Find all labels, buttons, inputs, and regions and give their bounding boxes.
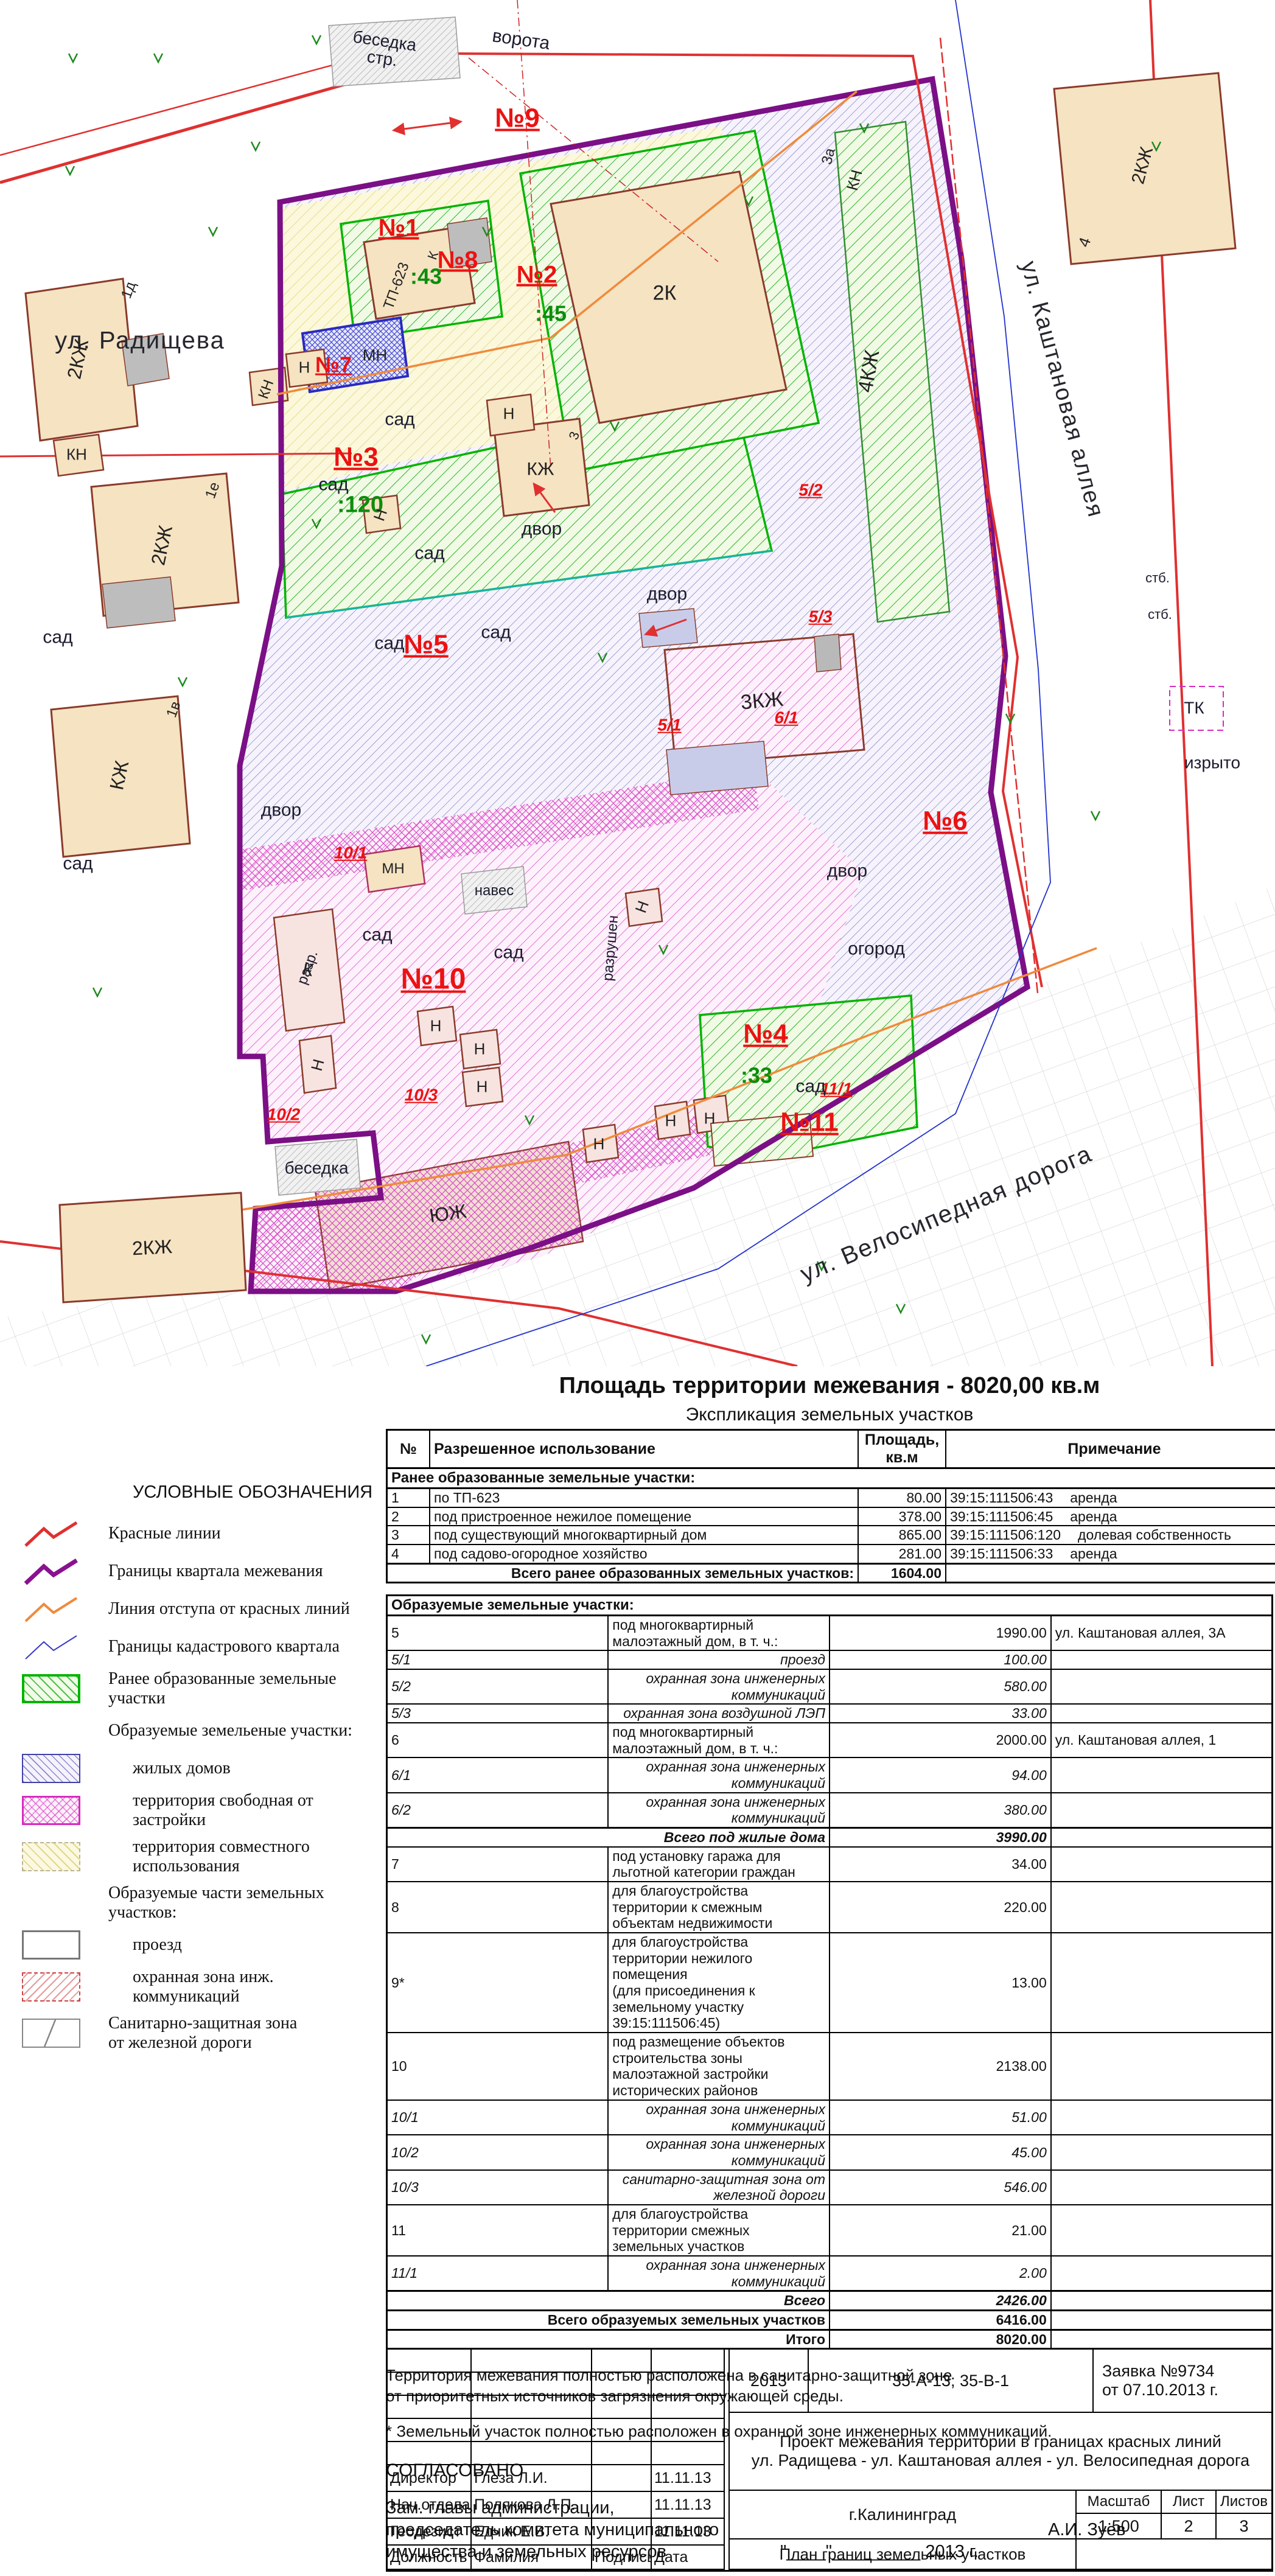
signer-signature [592,2519,652,2546]
map-label: №2 [517,263,557,288]
map-label: Н [371,507,389,523]
section-label: Образуемые земельные участки: [387,1596,1273,1616]
table-row: Всего под жилые дома3990.00 [387,1828,1273,1847]
stamp-col-header: Дата [652,2546,725,2570]
map-label: огород [848,940,905,959]
row-number: 11/1 [387,2256,609,2291]
map-label: ворота [491,27,551,54]
row-area: 80.00 [858,1488,946,1507]
legend-item: Санитарно-защитная зона от железной доро… [22,2014,382,2053]
row-use: охранная зона воздушной ЛЭП [608,1704,830,1723]
total-label: Итого [387,2330,830,2349]
legend-item: территория совместного использования [22,1837,382,1876]
stamp-col-header: Фамилия [472,2546,592,2570]
map-label: изрыто [1184,755,1240,772]
legend-swatch-box-white [22,1930,80,1960]
map-label: МН [363,347,387,364]
row-number: 10 [387,2033,609,2100]
map-label: КН [844,168,865,192]
tb-scale-label: Масштаб [1075,2491,1161,2514]
table-row: 10/2охранная зона инженерных коммуникаци… [387,2135,1273,2169]
table-row: 3под существующий многоквартирный дом865… [387,1526,1275,1545]
stamp-grid: ДиректорГлеза Л.И.11.11.13Нач.отделаПоля… [388,2350,728,2570]
row-note [1051,1669,1273,1704]
row-number: 10/2 [387,2135,609,2169]
map-label: сад [318,476,348,495]
legend-swatch-line [22,1557,80,1586]
row-number: 2 [387,1507,430,1526]
legend-item: Линия отступа от красных линий [22,1594,382,1624]
map-label: двор [647,585,687,604]
table-row: Всего образуемых земельных участков6416.… [387,2310,1273,2330]
legend-item-label: проезд [108,1935,182,1955]
row-note [1051,1650,1273,1669]
row-use: для благоустройства территории смежных з… [608,2205,830,2256]
row-area: 51.00 [830,2100,1051,2135]
col-num: № [387,1430,430,1468]
map-label: навес [475,884,514,898]
stamp-empty-cell [472,2396,592,2419]
map-label: сад [494,944,523,963]
map-label: сад [385,411,414,430]
signer-date: 11.11.13 [652,2519,725,2546]
row-number: 5/3 [387,1704,609,1723]
table-row: 2под пристроенное нежилое помещение378.0… [387,1507,1275,1526]
total-area: 8020.00 [830,2330,1051,2349]
tb-plan-title: План границ земельных участков [728,2539,1075,2570]
row-area: 2000.00 [830,1723,1051,1757]
map-label: 3 [567,430,582,441]
row-note [1051,2205,1273,2256]
tb-sheets: 3 [1215,2514,1271,2539]
map-label: МН [382,862,404,876]
map-label: Н [474,1041,486,1058]
row-area: 546.00 [830,2170,1051,2205]
row-note [1051,1882,1273,1933]
map-label: 2КЖ [131,1237,173,1258]
table-cell [946,1563,1275,1583]
map-label: сад [374,635,404,654]
table-row: 8для благоустройства территории к смежны… [387,1882,1273,1933]
legend-item-label: Границы квартала межевания [108,1562,323,1581]
page-subtitle: Экспликация земельных участков [386,1405,1273,1425]
row-note [1051,1704,1273,1723]
map-label: №1 [379,216,419,241]
total-label: Всего ранее образованных земельных участ… [387,1563,859,1583]
map-label: №11 [780,1109,839,1137]
page-title: Площадь территории межевания - 8020,00 к… [386,1373,1273,1399]
table-cell [1051,1828,1273,1847]
row-use: охранная зона инженерных коммуникаций [608,2100,830,2135]
table-row: Всего ранее образованных земельных участ… [387,1563,1275,1583]
map-label: Н [665,1113,677,1129]
map-label: двор [827,862,867,881]
stamp-empty-cell [592,2350,652,2373]
row-number: 4 [387,1545,430,1563]
row-area: 33.00 [830,1704,1051,1723]
row-use: по ТП-623 [430,1488,858,1507]
legend-item: охранная зона инж. коммуникаций [22,1967,382,2006]
row-use: для благоустройства территории нежилого … [608,1933,830,2033]
row-use: санитарно-защитная зона от железной доро… [608,2170,830,2205]
legend-item-label: Границы кадастрового квартала [108,1637,340,1656]
map-label: 1в [164,700,184,720]
row-number: 11 [387,2205,609,2256]
map-label: 5/1 [658,717,682,735]
legend-item-label: Линия отступа от красных линий [108,1599,350,1619]
stamp-empty-cell [388,2396,472,2419]
row-number: 10/1 [387,2100,609,2135]
legend-item-label: территория свободная от застройки [108,1791,382,1830]
tb-year: 2013 [728,2350,808,2413]
row-number: 3 [387,1526,430,1545]
legend-swatch-box-blue [22,1754,80,1783]
map-label: сад [414,545,444,564]
map-label: сад [481,624,511,643]
row-note [1051,1793,1273,1828]
map-label: Н [503,406,515,422]
map-label: беседка стр. [349,28,417,71]
legend-swatch-line [22,1519,80,1548]
map-label: 10/3 [405,1087,438,1105]
legend-item: Границы квартала межевания [22,1556,382,1586]
row-note: 39:15:111506:120долевая собственность [946,1526,1275,1545]
total-label: Всего под жилые дома [387,1828,830,1847]
map-label: Н [309,1057,327,1072]
row-note [1051,2256,1273,2291]
row-use: охранная зона инженерных коммуникаций [608,1793,830,1828]
map-label: 6/1 [775,710,798,727]
map-label: Н [299,360,310,376]
row-number: 1 [387,1488,430,1507]
stamp-empty-cell [652,2419,725,2442]
map-label: стб. [1145,571,1170,585]
legend-swatch-line [22,1632,80,1661]
stamp-empty-cell [388,2350,472,2373]
signer-name: Едчик Е.В. [472,2519,592,2546]
table-row: 1по ТП-62380.0039:15:111506:43аренда [387,1488,1275,1507]
map-label: 3а [820,147,839,166]
total-area: 1604.00 [858,1563,946,1583]
row-note: 39:15:111506:43аренда [946,1488,1275,1507]
map-label: КЖ [107,759,132,792]
row-area: 380.00 [830,1793,1051,1828]
row-note: ул. Каштановая аллея, 3А [1051,1616,1273,1651]
table-row: 6/2охранная зона инженерных коммуникаций… [387,1793,1273,1828]
stamp-empty-cell [592,2442,652,2465]
map-label: стб. [1148,608,1172,621]
total-label: Всего образуемых земельных участков [387,2310,830,2330]
stamp-empty-cell [652,2396,725,2419]
row-area: 2138.00 [830,2033,1051,2100]
map-label: №7 [315,354,352,377]
col-use: Разрешенное использование [430,1430,858,1468]
table-row: 11/1охранная зона инженерных коммуникаци… [387,2256,1273,2291]
map-label: №10 [401,965,466,995]
table-row: Ранее образованные земельные участки: [387,1468,1275,1489]
legend-item: проезд [22,1930,382,1960]
total-area: 3990.00 [830,1828,1051,1847]
stamp-col-header: Подпись [592,2546,652,2570]
row-number: 9* [387,1933,609,2033]
map-label: 10/1 [334,845,368,862]
tb-scale: 1:500 [1075,2514,1161,2539]
signer-date: 11.11.13 [652,2465,725,2492]
row-use: охранная зона инженерных коммуникаций [608,2256,830,2291]
explication-table-2: Образуемые земельные участки:5под многок… [386,1594,1273,2350]
table-row: 4под садово-огородное хозяйство281.0039:… [387,1545,1275,1563]
title-block: ДиректорГлеза Л.И.11.11.13Нач.отделаПоля… [386,2348,1273,2572]
tb-sheet-label: Лист [1161,2491,1215,2514]
map-label: №9 [495,105,540,133]
row-area: 580.00 [830,1669,1051,1704]
map-label: сад [43,629,72,647]
legend-swatch-box-red [22,1972,80,2002]
map-label: 2К [653,283,677,304]
row-note: 39:15:111506:45аренда [946,1507,1275,1526]
map-label: КН [66,447,87,463]
map-label: №6 [923,808,968,836]
map-label: 4 [1075,236,1094,250]
row-note [1051,2033,1273,2100]
signer-date: 11.11.13 [652,2492,725,2519]
row-number: 6 [387,1723,609,1757]
row-use: под многоквартирный малоэтажный дом, в т… [608,1723,830,1757]
legend-swatch-none [22,1888,80,1918]
tb-project-2: ул. Радищева - ул. Каштановая аллея - ул… [752,2451,1249,2470]
row-area: 21.00 [830,2205,1051,2256]
row-use: охранная зона инженерных коммуникаций [608,1757,830,1792]
row-area: 94.00 [830,1757,1051,1792]
row-area: 378.00 [858,1507,946,1526]
table-row: Итого8020.00 [387,2330,1273,2349]
signer-role: Геодезист [388,2519,472,2546]
stamp-empty-cell [592,2396,652,2419]
row-use: под существующий многоквартирный дом [430,1526,858,1545]
table-row: 6/1охранная зона инженерных коммуникаций… [387,1757,1273,1792]
legend-item: жилых домов [22,1753,382,1784]
map-label: Н [704,1111,716,1127]
map-label: 1д [119,280,139,301]
table-row: 10/3санитарно-защитная зона от железной … [387,2170,1273,2205]
legend-title: УСЛОВНЫЕ ОБОЗНАЧЕНИЯ [133,1482,382,1503]
signer-signature [592,2492,652,2519]
row-number: 5/1 [387,1650,609,1669]
row-number: 5/2 [387,1669,609,1704]
table-row: 7под установку гаража для льготной катег… [387,1847,1273,1882]
signer-role: Нач.отдела [388,2492,472,2519]
table-row: 9*для благоустройства территории нежилог… [387,1933,1273,2033]
legend-swatch-none [22,1716,80,1745]
table-cell [1051,2310,1273,2330]
legend-item-label: Образуемые земельеные участки: [108,1721,352,1740]
legend-swatch-box-sanitary [22,2019,80,2048]
stamp-col-header: Должность [388,2546,472,2570]
map-label: ЮЖ [428,1201,467,1226]
row-note [1051,1847,1273,1882]
map-label: 3КЖ [740,689,784,714]
tb-project-1: Проект межевания территории в границах к… [780,2432,1221,2451]
legend-items: Красные линииГраницы квартала межеванияЛ… [22,1518,382,2053]
tb-sheet: 2 [1161,2514,1215,2539]
row-number: 8 [387,1882,609,1933]
table-row: 11для благоустройства территории смежных… [387,2205,1273,2256]
map-label: №8 [438,248,478,273]
map-label: Н [632,899,651,915]
map-label: двор [522,520,562,539]
map-label: Н [430,1018,442,1035]
legend-item-label: охранная зона инж. коммуникаций [108,1967,382,2006]
legend-item-label: территория совместного использования [108,1837,382,1876]
map-label: :33 [741,1065,772,1087]
total-area: 2426.00 [830,2291,1051,2311]
tb-city: г.Калининград [728,2491,1075,2539]
legend-item-label: Санитарно-защитная зона от железной доро… [108,2014,297,2053]
row-note [1051,2135,1273,2169]
total-area: 6416.00 [830,2310,1051,2330]
map-label: беседка [284,1160,348,1178]
map-label: сад [63,855,93,874]
legend-item-label: жилых домов [108,1759,231,1778]
row-area: 2.00 [830,2256,1051,2291]
map-labels: ул. Радищеваул. Каштановая аллеяул. Вело… [0,0,1275,1366]
stamp-empty-cell [652,2350,725,2373]
map-label: 5/2 [799,482,823,500]
tb-sheets-label: Листов [1215,2491,1271,2514]
legend-item-label: Ранее образованные земельные участки [108,1669,382,1708]
map-label: :43 [410,266,442,288]
map-label: №4 [743,1021,788,1049]
legend-item: Ранее образованные земельные участки [22,1669,382,1708]
title-block-right: 2013 35-А-13; 35-В-1 Заявка №9734 от 07.… [728,2350,1271,2570]
row-area: 865.00 [858,1526,946,1545]
row-number: 7 [387,1847,609,1882]
map-label: ТП-623 [382,260,412,312]
tb-request: Заявка №9734 от 07.10.2013 г. [1092,2350,1271,2413]
stamp-empty-cell [472,2419,592,2442]
signer-signature [592,2465,652,2492]
map-label: сад [362,926,392,945]
row-use: под размещение объектов строительства зо… [608,2033,830,2100]
row-number: 6/1 [387,1757,609,1792]
stamp-empty-cell [388,2442,472,2465]
stamp-empty-cell [472,2350,592,2373]
row-number: 10/3 [387,2170,609,2205]
row-area: 45.00 [830,2135,1051,2169]
map-label: двор [261,801,301,820]
row-note [1051,1933,1273,2033]
stamp-empty-cell [652,2373,725,2396]
legend-item: территория свободная от застройки [22,1791,382,1830]
map-label: 5/3 [809,609,833,626]
table-row: 5/3охранная зона воздушной ЛЭП33.00 [387,1704,1273,1723]
row-number: 6/2 [387,1793,609,1828]
row-note [1051,2100,1273,2135]
legend-item-label: Образуемые части земельных участков: [108,1883,382,1922]
row-area: 281.00 [858,1545,946,1563]
stamp-empty-cell [592,2373,652,2396]
table-row: 10под размещение объектов строительства … [387,2033,1273,2100]
legend-item-label: Красные линии [108,1524,221,1543]
stamp-empty-cell [472,2442,592,2465]
map-label: 10/2 [267,1106,301,1124]
table-row: 10/1охранная зона инженерных коммуникаци… [387,2100,1273,2135]
map-label: ТК [1184,700,1204,717]
table-cell [1051,2330,1273,2349]
row-use: проезд [608,1650,830,1669]
section-label: Ранее образованные земельные участки: [387,1468,1275,1489]
map-label: №3 [334,444,379,472]
map-label: ул. Каштановая аллея [1016,259,1108,520]
row-note [1051,1757,1273,1792]
legend-swatch-box-green [22,1674,80,1703]
row-note [1051,2170,1273,2205]
map-label: сад [795,1078,825,1097]
total-label: Всего [387,2291,830,2311]
legend-swatch-line [22,1594,80,1624]
signer-name: Полякова Л.П. [472,2492,592,2519]
map-label: Н [477,1079,488,1095]
table-row: 6под многоквартирный малоэтажный дом, в … [387,1723,1273,1757]
table-row: 5/2охранная зона инженерных коммуникаций… [387,1669,1273,1704]
row-number: 5 [387,1616,609,1651]
map-label: Н [593,1136,605,1153]
map-label: 1е [203,480,223,500]
map-label: ул. Велосипедная дорога [797,1141,1095,1286]
row-area: 220.00 [830,1882,1051,1933]
map-label: №5 [403,632,449,659]
row-use: для благоустройства территории к смежным… [608,1882,830,1933]
map-label: 2КЖ [148,523,176,567]
row-use: под многоквартирный малоэтажный дом, в т… [608,1616,830,1651]
table-cell [1051,2291,1273,2311]
table-row: Всего2426.00 [387,2291,1273,2311]
col-note: Примечание [946,1430,1275,1468]
row-area: 34.00 [830,1847,1051,1882]
legend-swatch-box-magenta [22,1796,80,1825]
table-row: 5/1проезд100.00 [387,1650,1273,1669]
legend-item: Образуемые части земельных участков: [22,1883,382,1922]
site-plan-map: ул. Радищеваул. Каштановая аллеяул. Вело… [0,0,1275,1366]
row-use: под садово-огородное хозяйство [430,1545,858,1563]
row-area: 13.00 [830,1933,1051,2033]
explication-table-1: № Разрешенное использование Площадь, кв.… [386,1429,1275,1583]
row-use: охранная зона инженерных коммуникаций [608,1669,830,1704]
legend-item: Образуемые земельеные участки: [22,1716,382,1746]
row-note: 39:15:111506:33аренда [946,1545,1275,1563]
row-use: охранная зона инженерных коммуникаций [608,2135,830,2169]
table-row: Образуемые земельные участки: [387,1596,1273,1616]
col-area: Площадь, кв.м [858,1430,946,1468]
stamp-empty-cell [472,2373,592,2396]
map-label: 4КЖ [855,348,883,394]
legend: УСЛОВНЫЕ ОБОЗНАЧЕНИЯ Красные линииГраниц… [22,1482,382,2060]
map-label: КН [256,378,277,401]
legend-item: Границы кадастрового квартала [22,1632,382,1662]
plan-sheet: ул. Радищеваул. Каштановая аллеяул. Вело… [0,0,1275,2576]
table-row: 5под многоквартирный малоэтажный дом, в … [387,1616,1273,1651]
signer-name: Глеза Л.И. [472,2465,592,2492]
row-area: 100.00 [830,1650,1051,1669]
row-use: под установку гаража для льготной катего… [608,1847,830,1882]
row-note: ул. Каштановая аллея, 1 [1051,1723,1273,1757]
tb-code: 35-А-13; 35-В-1 [808,2350,1092,2413]
stamp-empty-cell [592,2419,652,2442]
row-area: 1990.00 [830,1616,1051,1651]
stamp-empty-cell [652,2442,725,2465]
map-label: 2КЖ [1129,145,1157,186]
stamp-empty-cell [388,2373,472,2396]
